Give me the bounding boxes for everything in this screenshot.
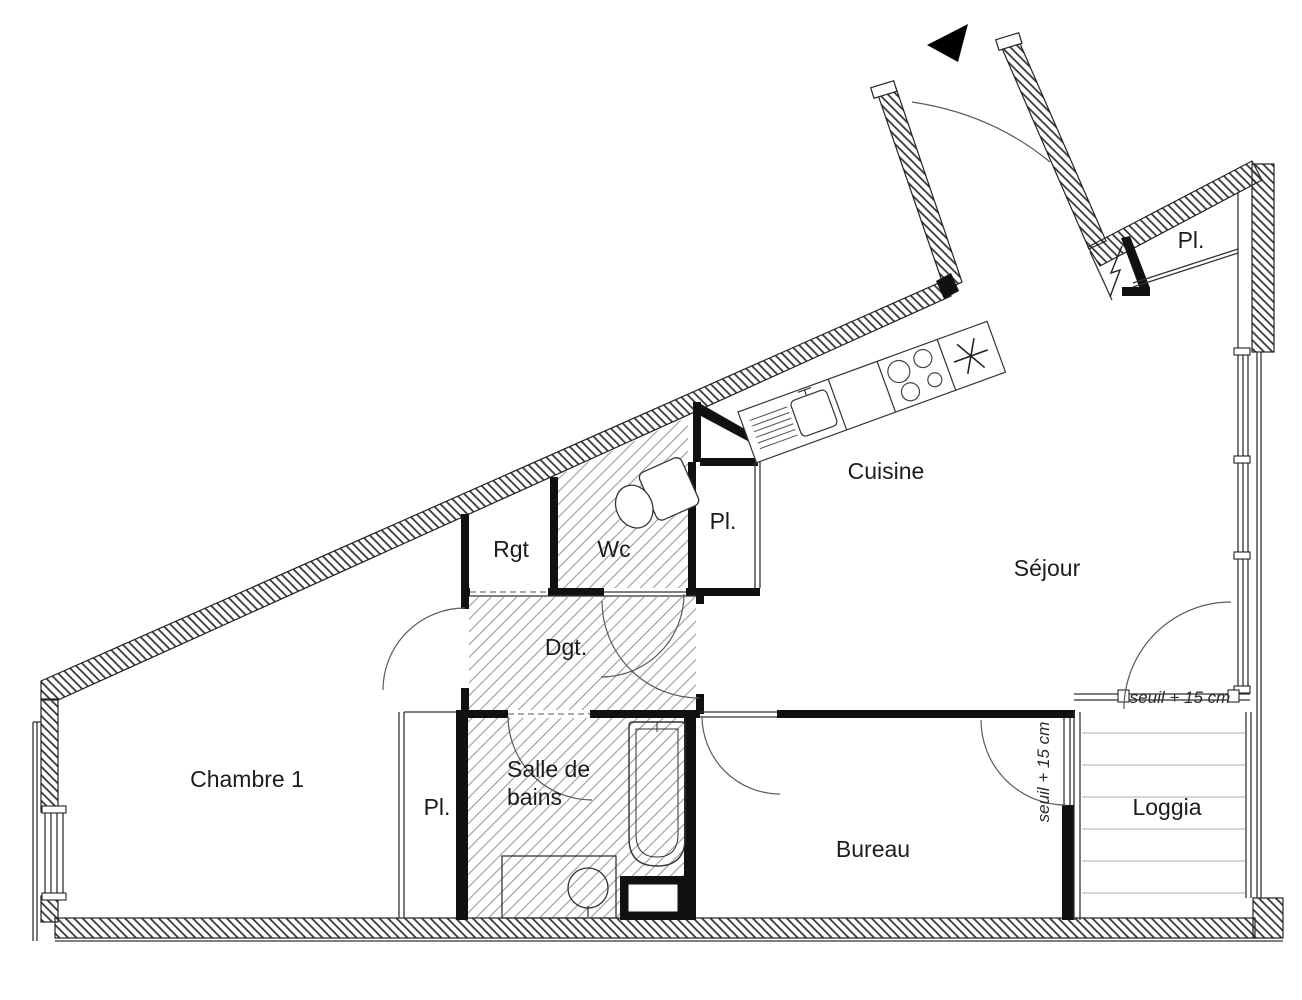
bureau-loggia-door-arc — [981, 720, 1066, 805]
label-sejour: Séjour — [1014, 555, 1081, 581]
label-rangement: Rgt — [493, 536, 529, 562]
kitchen-counter-outline — [738, 321, 1005, 462]
wall-bottom-right-step — [1253, 898, 1283, 938]
label-bureau: Bureau — [836, 836, 910, 862]
sdb-top-wall-right — [590, 710, 700, 718]
kitchen-counter — [738, 321, 1005, 462]
label-loggia: Loggia — [1132, 794, 1201, 820]
dgt-right-wall-top — [696, 592, 704, 604]
label-wc: Wc — [597, 536, 630, 562]
floor-plan-svg: Chambre 1 Salle de bains Pl. Dgt. Rgt Wc… — [0, 0, 1302, 1000]
sdb-top-wall-left — [456, 710, 508, 718]
label-seuil-sejour-loggia: seuil + 15 cm — [1130, 688, 1231, 707]
wall-right-top — [1252, 164, 1274, 352]
chambre-window-cap-top — [42, 806, 66, 813]
wc-left-wall — [550, 477, 558, 590]
label-placard-chambre: Pl. — [424, 794, 451, 820]
bottom-band-b — [548, 588, 604, 596]
wall-entry-right — [1001, 39, 1106, 249]
chambre-door-arc — [383, 608, 465, 690]
sejour-window-tick-1 — [1234, 456, 1250, 463]
label-placard-entree: Pl. — [1178, 227, 1205, 253]
pl-couloir-top-wall — [700, 458, 758, 466]
sejour-bureau-wall — [777, 710, 1075, 718]
wall-bottom — [55, 918, 1255, 938]
label-chambre1: Chambre 1 — [190, 766, 304, 792]
label-placard-couloir: Pl. — [710, 508, 737, 534]
bureau-right-wall — [1062, 805, 1074, 920]
north-arrow-icon — [927, 24, 968, 62]
kitchen-duct-left — [693, 402, 701, 462]
sejour-window-cap-top — [1234, 348, 1250, 355]
loggia-door-jamb-left — [1118, 690, 1129, 702]
sdb-left-wall — [456, 718, 468, 920]
label-salle-de-bains-line1: Salle de — [507, 756, 590, 782]
rangement-left-wall — [461, 514, 469, 592]
chambre-window-cap-bottom — [42, 893, 66, 900]
bureau-door-arc — [702, 716, 780, 794]
label-salle-de-bains-line2: bains — [507, 784, 562, 810]
bureau-right-wall-jamb — [1062, 710, 1074, 718]
pl-entree-bottom-b — [1133, 249, 1238, 283]
wall-left-upper — [41, 699, 58, 812]
label-seuil-bureau-loggia: seuil + 15 cm — [1034, 722, 1053, 823]
dgt-left-wall-top — [461, 592, 469, 609]
label-degagement: Dgt. — [545, 634, 587, 660]
pl-entree-bottom-a — [1133, 253, 1238, 287]
pl-entree-door-foot — [1122, 287, 1150, 296]
floor-plan: Chambre 1 Salle de bains Pl. Dgt. Rgt Wc… — [0, 0, 1302, 1000]
wall-entry-left — [878, 88, 962, 290]
sejour-window-tick-2 — [1234, 552, 1250, 559]
label-cuisine: Cuisine — [848, 458, 925, 484]
sdb-duct-inner — [628, 884, 678, 912]
